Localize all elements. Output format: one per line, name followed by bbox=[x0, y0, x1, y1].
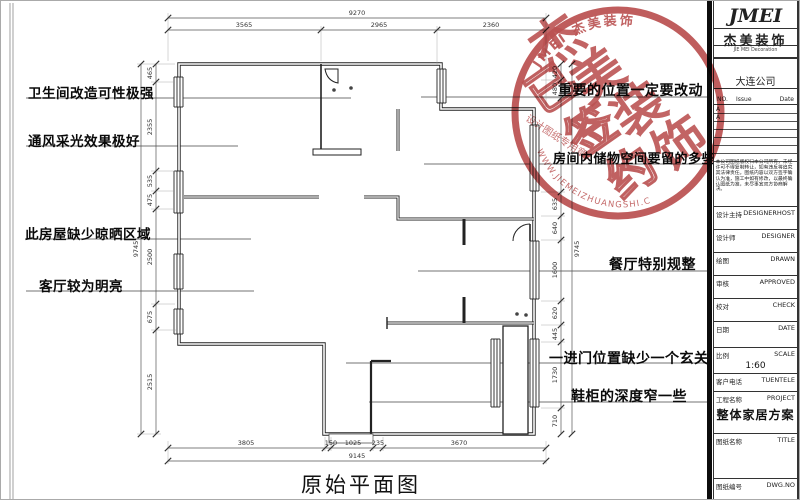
annotation-bathroom: 卫生间改造可性极强 bbox=[28, 82, 154, 102]
dim-left-1: 465 bbox=[147, 67, 154, 79]
drawing-sheet: 卫生间改造可性极强 通风采光效果极好 此房屋缺少晾晒区域 客厅较为明亮 重要的位… bbox=[0, 0, 800, 500]
scale-value: 1:60 bbox=[714, 361, 797, 371]
row-label-en: TITLE bbox=[777, 436, 795, 444]
row-label-cn: 设计师 bbox=[716, 232, 736, 242]
dim-left-2: 2355 bbox=[147, 119, 154, 136]
floor-plan-drawing bbox=[1, 1, 800, 500]
annotation-living-room: 客厅较为明亮 bbox=[39, 275, 123, 295]
annotation-ventilation: 通风采光效果极好 bbox=[28, 130, 140, 150]
rev-no-label: NO. bbox=[717, 96, 728, 103]
interior-walls bbox=[184, 64, 534, 443]
dim-top-2: 2965 bbox=[371, 22, 388, 29]
dim-top-overall: 9270 bbox=[349, 10, 366, 17]
annotation-storage-space: 房间内储物空间要留的多些 bbox=[553, 148, 715, 167]
row-label-en: CHECK bbox=[773, 301, 795, 309]
drain-icon bbox=[524, 313, 528, 317]
rev-issue-label: Issue bbox=[736, 96, 752, 103]
row-label-cn: 图纸名称 bbox=[716, 436, 742, 446]
row-scale: 比例 SCALE 1:60 bbox=[714, 347, 797, 373]
duct-block bbox=[503, 326, 528, 434]
company-name-cn: 杰美装饰 bbox=[714, 30, 797, 46]
dim-right-8: 1730 bbox=[552, 367, 559, 384]
plan-title: 原始平面图 bbox=[301, 469, 421, 499]
revision-row bbox=[714, 146, 797, 154]
row-label-cn: 设计主持 bbox=[716, 209, 742, 219]
revision-header: NO. Issue Date bbox=[714, 96, 797, 105]
row-label-en: SCALE bbox=[774, 350, 795, 358]
revision-row: A bbox=[714, 106, 797, 114]
row-title: 图纸名称 TITLE bbox=[714, 433, 797, 478]
dim-left-overall: 9745 bbox=[133, 241, 140, 258]
window-symbols bbox=[174, 69, 540, 407]
row-label-en: DWG.NO bbox=[766, 481, 795, 489]
row-designer: 设计师 DESIGNER bbox=[714, 229, 797, 252]
dim-right-4: 640 bbox=[552, 222, 559, 234]
row-label-en: DESIGNERHOST bbox=[743, 209, 795, 217]
row-approved: 审核 APPROVED bbox=[714, 275, 797, 298]
dim-right-9: 710 bbox=[552, 415, 559, 427]
titleblock-separator bbox=[707, 1, 712, 500]
annotation-foyer: 一进门位置缺少一个玄关 bbox=[549, 348, 709, 368]
revision-row: A bbox=[714, 114, 797, 122]
drain-icon bbox=[332, 88, 336, 92]
row-label-cn: 审核 bbox=[716, 278, 729, 288]
row-label-en: APPROVED bbox=[760, 278, 795, 286]
revision-row bbox=[714, 130, 797, 138]
annotation-shoe-cabinet: 鞋柜的深度窄一些 bbox=[571, 386, 687, 406]
row-label-cn: 日期 bbox=[716, 324, 729, 334]
titleblock: JMEI 杰美装饰 JIE MEI Decoration 大连公司 NO. Is… bbox=[713, 1, 799, 500]
dim-bottom-3: 1025 bbox=[345, 440, 362, 447]
row-label-cn: 工程名称 bbox=[716, 394, 742, 404]
dim-top-1: 3565 bbox=[236, 22, 253, 29]
dim-right-5: 1600 bbox=[552, 262, 559, 279]
row-designerhost: 设计主持 DESIGNERHOST bbox=[714, 206, 797, 229]
dim-right-6: 620 bbox=[552, 307, 559, 319]
drain-icon bbox=[515, 312, 519, 316]
revision-row bbox=[714, 122, 797, 130]
dim-left-3: 535 bbox=[147, 175, 154, 187]
dim-left-4: 475 bbox=[147, 194, 154, 206]
row-project: 工程名称 PROJECT 整体家居方案 bbox=[714, 391, 797, 433]
row-label-en: DRAWN bbox=[770, 255, 795, 263]
annotation-dining-room: 餐厅特别规整 bbox=[609, 254, 696, 274]
titleblock-notes: 本公司图纸版权归本公司所有，未经许可不得复制转让，如有违反将追究其法律责任。图纸… bbox=[714, 159, 797, 196]
row-label-cn: 比例 bbox=[716, 350, 729, 360]
company-logo: JMEI bbox=[714, 5, 797, 29]
extension-lines bbox=[137, 13, 565, 464]
branch-name: 大连公司 bbox=[714, 67, 797, 89]
dim-bottom-5: 3670 bbox=[451, 440, 468, 447]
dim-bottom-4: 235 bbox=[372, 440, 384, 447]
dim-left-5: 2500 bbox=[147, 249, 154, 266]
outer-walls bbox=[179, 64, 534, 434]
row-client-tel: 客户电话 TUENTELE bbox=[714, 373, 797, 391]
drain-icon bbox=[349, 86, 353, 90]
dim-right-3: 635 bbox=[552, 198, 559, 210]
annotation-important-position: 重要的位置一定要改动 bbox=[558, 80, 703, 100]
dim-right-1: 420 bbox=[552, 66, 559, 78]
dim-right-overall: 9745 bbox=[574, 241, 581, 258]
row-drawn: 绘图 DRAWN bbox=[714, 252, 797, 275]
sheet-border-lines bbox=[10, 3, 13, 499]
revision-row bbox=[714, 138, 797, 146]
rev-date-label: Date bbox=[780, 96, 794, 103]
row-label-cn: 绘图 bbox=[716, 255, 729, 265]
dim-bottom-2: 150 bbox=[325, 440, 337, 447]
row-label-cn: 图纸编号 bbox=[716, 481, 742, 491]
dim-right-2: 480 bbox=[552, 83, 559, 95]
divider bbox=[714, 57, 797, 59]
company-name-en: JIE MEI Decoration bbox=[722, 47, 788, 54]
row-dwg-no: 图纸编号 DWG.NO bbox=[714, 478, 797, 499]
project-value: 整体家居方案 bbox=[714, 406, 797, 423]
dim-bottom-overall: 9145 bbox=[349, 453, 366, 460]
row-label-en: DATE bbox=[778, 324, 795, 332]
dim-top-3: 2360 bbox=[483, 22, 500, 29]
dim-left-6: 675 bbox=[147, 311, 154, 323]
row-label-en: DESIGNER bbox=[761, 232, 795, 240]
row-label-en: PROJECT bbox=[767, 394, 795, 402]
row-label-cn: 客户电话 bbox=[716, 376, 742, 386]
row-label-cn: 校对 bbox=[716, 301, 729, 311]
door-symbols bbox=[325, 69, 530, 317]
dim-left-7: 2515 bbox=[147, 374, 154, 391]
dim-bottom-1: 3805 bbox=[238, 440, 255, 447]
row-label-en: TUENTELE bbox=[761, 376, 795, 384]
row-check: 校对 CHECK bbox=[714, 298, 797, 321]
dim-right-7: 445 bbox=[552, 328, 559, 340]
row-date: 日期 DATE bbox=[714, 321, 797, 347]
